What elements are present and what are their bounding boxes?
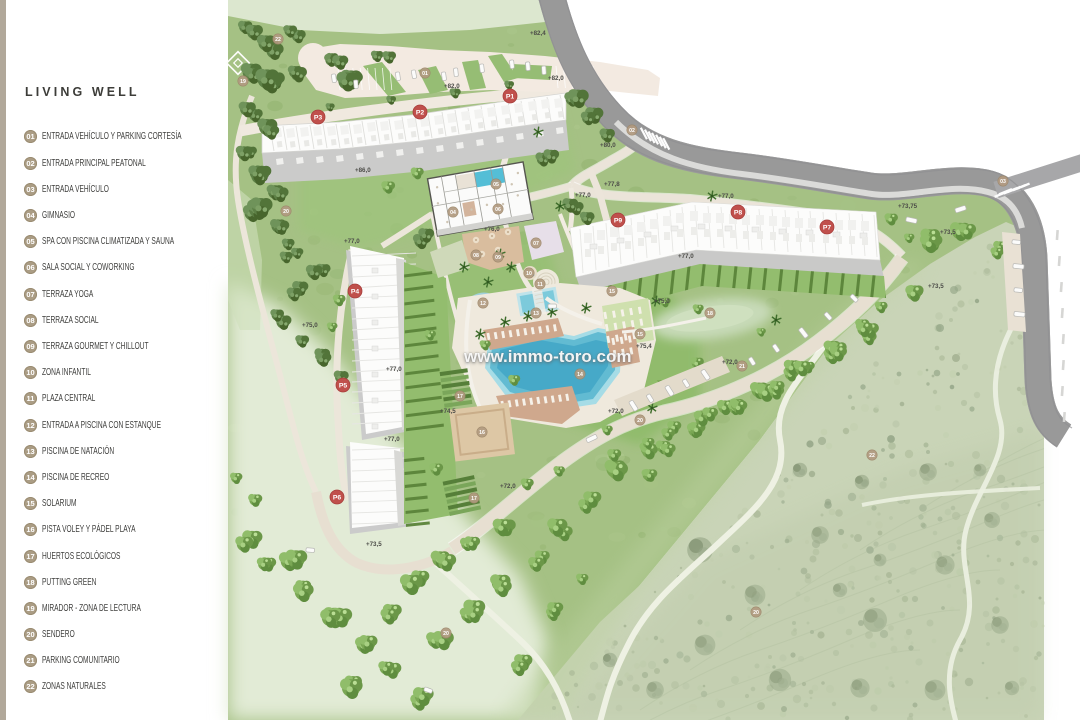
- svg-text:09: 09: [495, 255, 501, 261]
- svg-text:+80,0: +80,0: [600, 142, 616, 149]
- svg-text:+77,0: +77,0: [718, 193, 734, 200]
- svg-text:+77,0: +77,0: [384, 436, 400, 443]
- svg-text:+73,75: +73,75: [898, 203, 918, 210]
- svg-text:+77,8: +77,8: [604, 181, 620, 188]
- svg-text:+76,0: +76,0: [484, 226, 500, 233]
- svg-text:01: 01: [422, 71, 428, 77]
- svg-text:P6: P6: [333, 494, 342, 501]
- svg-text:P3: P3: [314, 114, 323, 121]
- svg-text:+75,0: +75,0: [302, 322, 318, 329]
- svg-text:P4: P4: [351, 288, 360, 295]
- svg-text:21: 21: [739, 364, 745, 370]
- svg-text:+74,5: +74,5: [440, 408, 456, 415]
- svg-text:+73,5: +73,5: [928, 283, 944, 290]
- svg-text:18: 18: [707, 311, 713, 317]
- svg-text:P9: P9: [614, 217, 623, 224]
- svg-text:05: 05: [493, 182, 499, 188]
- svg-text:20: 20: [283, 209, 289, 215]
- svg-text:10: 10: [526, 271, 532, 277]
- svg-text:08: 08: [473, 253, 479, 259]
- svg-text:+75,0: +75,0: [654, 298, 670, 305]
- svg-text:+75,4: +75,4: [636, 343, 652, 350]
- svg-text:+77,0: +77,0: [575, 192, 591, 199]
- svg-text:20: 20: [443, 631, 449, 637]
- svg-text:+82,0: +82,0: [444, 83, 460, 90]
- svg-text:17: 17: [457, 394, 463, 400]
- svg-text:+72,0: +72,0: [500, 483, 516, 490]
- svg-text:+77,0: +77,0: [678, 253, 694, 260]
- svg-text:22: 22: [275, 37, 281, 43]
- svg-text:22: 22: [869, 453, 875, 459]
- svg-text:20: 20: [637, 418, 643, 424]
- svg-text:14: 14: [577, 372, 583, 378]
- svg-text:P5: P5: [339, 382, 348, 389]
- svg-text:11: 11: [537, 282, 543, 288]
- svg-text:+77,0: +77,0: [344, 238, 360, 245]
- svg-text:P2: P2: [416, 109, 425, 116]
- svg-text:03: 03: [1000, 179, 1006, 185]
- svg-text:15: 15: [609, 289, 615, 295]
- svg-text:P7: P7: [823, 224, 832, 231]
- svg-text:17: 17: [471, 496, 477, 502]
- svg-text:02: 02: [629, 128, 635, 134]
- svg-text:+77,0: +77,0: [386, 366, 402, 373]
- svg-text:04: 04: [450, 210, 456, 216]
- svg-text:+72,0: +72,0: [722, 359, 738, 366]
- svg-text:12: 12: [480, 301, 486, 307]
- svg-text:15: 15: [637, 332, 643, 338]
- svg-text:+82,0: +82,0: [548, 75, 564, 82]
- svg-text:19: 19: [240, 79, 246, 85]
- svg-text:P8: P8: [734, 209, 743, 216]
- svg-text:+82,4: +82,4: [530, 30, 546, 37]
- svg-text:06: 06: [495, 207, 501, 213]
- svg-text:+73,5: +73,5: [366, 541, 382, 548]
- svg-text:+73,5: +73,5: [940, 229, 956, 236]
- svg-text:P1: P1: [506, 93, 515, 100]
- svg-text:13: 13: [533, 311, 539, 317]
- svg-text:20: 20: [753, 610, 759, 616]
- svg-text:07: 07: [533, 241, 539, 247]
- svg-text:16: 16: [479, 430, 485, 436]
- svg-text:+86,0: +86,0: [355, 167, 371, 174]
- svg-text:+72,0: +72,0: [608, 408, 624, 415]
